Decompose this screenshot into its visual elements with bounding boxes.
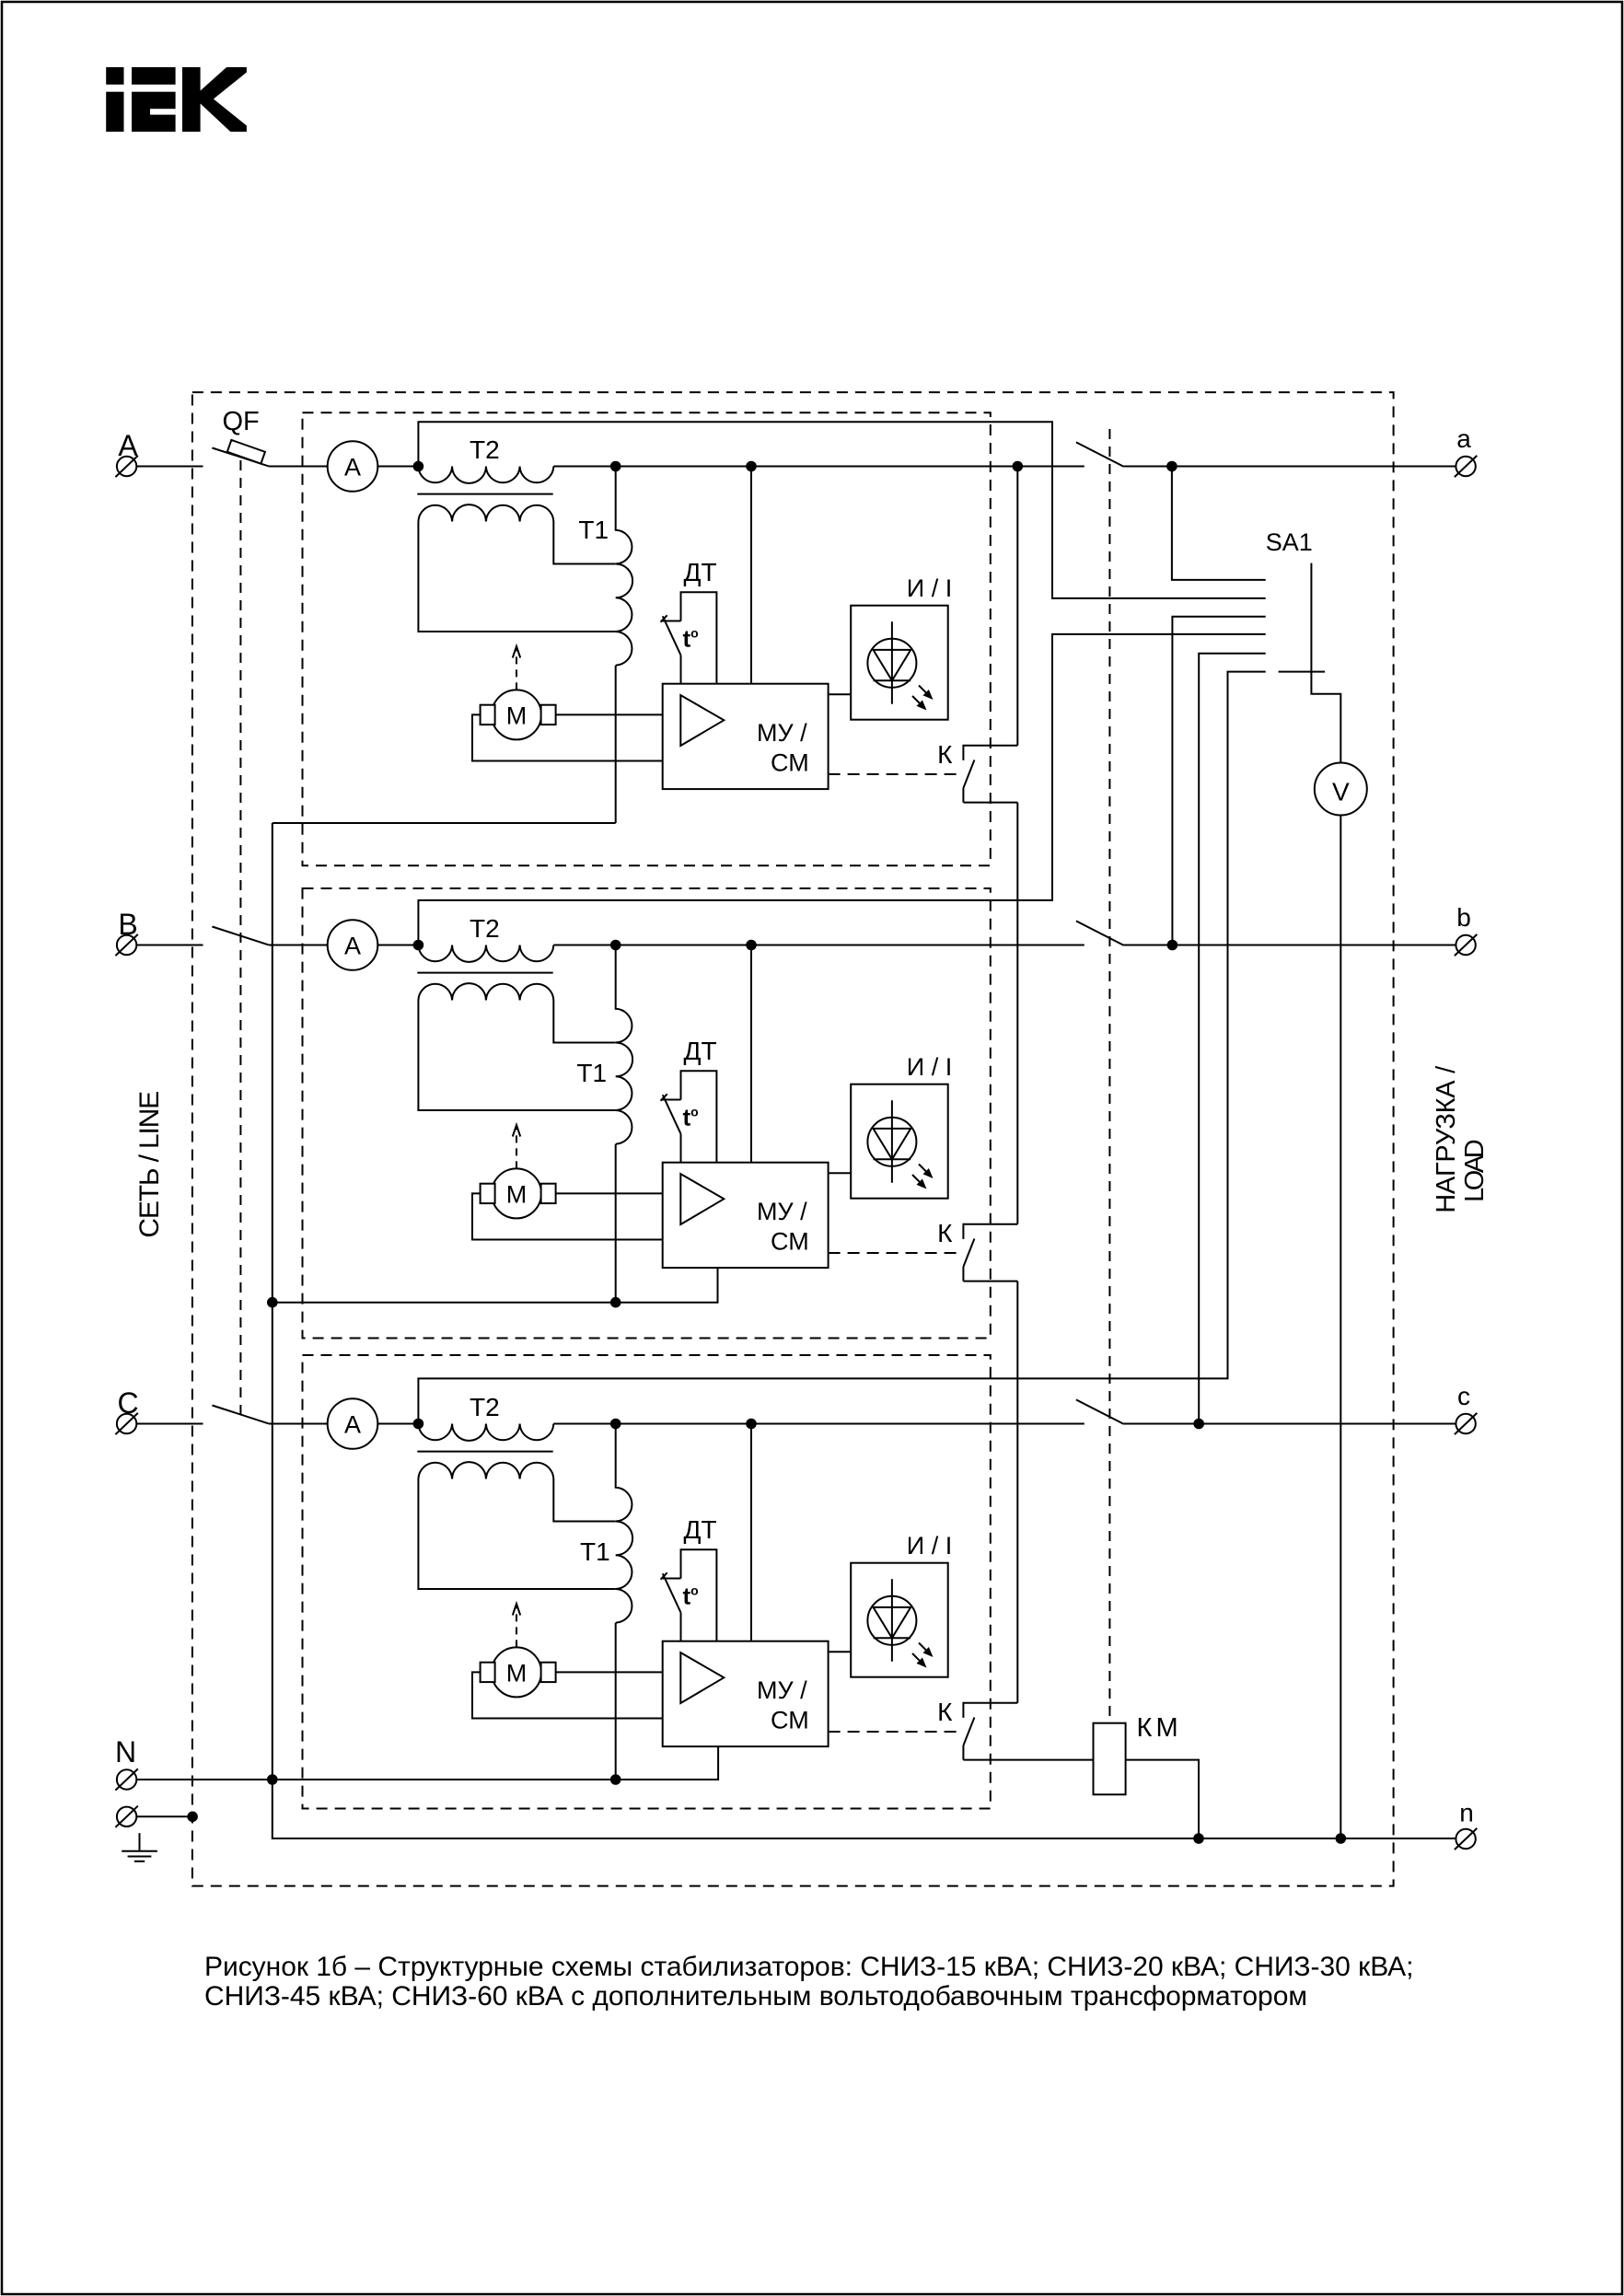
svg-text:ДТ: ДТ — [684, 558, 717, 586]
svg-text:c: c — [1457, 1382, 1470, 1410]
svg-text:to: to — [683, 1103, 699, 1131]
svg-text:К: К — [937, 740, 953, 769]
svg-text:V: V — [1332, 777, 1350, 806]
svg-text:ДТ: ДТ — [684, 1037, 717, 1065]
svg-text:К: К — [937, 1698, 953, 1726]
svg-text:C: C — [117, 1386, 138, 1420]
svg-text:T1: T1 — [580, 1537, 610, 1566]
svg-text:A: A — [344, 932, 361, 959]
svg-text:T2: T2 — [470, 435, 500, 464]
svg-text:СМ: СМ — [771, 1228, 809, 1256]
svg-text:И / I: И / I — [907, 1532, 952, 1560]
svg-text:И / I: И / I — [907, 574, 952, 602]
svg-text:ДТ: ДТ — [684, 1515, 717, 1544]
svg-text:И / I: И / I — [907, 1053, 952, 1081]
svg-text:T2: T2 — [470, 914, 500, 943]
svg-text:N: N — [115, 1735, 136, 1768]
svg-text:МУ /: МУ / — [757, 1198, 807, 1225]
svg-text:a: a — [1456, 424, 1471, 453]
svg-text:СМ: СМ — [771, 1707, 809, 1734]
svg-text:КМ: КМ — [1137, 1713, 1178, 1743]
svg-text:to: to — [683, 1582, 699, 1609]
svg-text:A: A — [344, 453, 361, 481]
svg-text:T2: T2 — [470, 1393, 500, 1421]
svg-text:М: М — [506, 1659, 528, 1687]
svg-text:М: М — [506, 1180, 528, 1208]
svg-text:LOAD: LOAD — [1460, 1139, 1490, 1202]
svg-text:b: b — [1456, 903, 1471, 932]
svg-text:QF: QF — [223, 407, 260, 436]
svg-text:T1: T1 — [578, 516, 609, 544]
svg-text:A: A — [344, 1410, 361, 1438]
svg-text:n: n — [1459, 1799, 1474, 1827]
svg-text:SA1: SA1 — [1266, 528, 1313, 556]
svg-text:A: A — [118, 429, 138, 462]
svg-text:T1: T1 — [576, 1059, 607, 1087]
svg-text:СНИЗ-45 кВА; СНИЗ-60 кВА с доп: СНИЗ-45 кВА; СНИЗ-60 кВА с дополнительны… — [204, 1981, 1307, 2012]
svg-text:to: to — [683, 624, 699, 652]
svg-text:B: B — [118, 908, 137, 941]
svg-text:СМ: СМ — [771, 749, 809, 777]
svg-text:МУ /: МУ / — [757, 719, 807, 747]
svg-text:СЕТЬ / LINE: СЕТЬ / LINE — [134, 1091, 165, 1238]
svg-text:К: К — [937, 1219, 953, 1247]
svg-text:НАГРУЗКА /: НАГРУЗКА / — [1432, 1065, 1461, 1213]
svg-text:МУ /: МУ / — [757, 1676, 807, 1704]
svg-text:Рисунок 1б – Структурные схем: Рисунок 1б – Структурные схемы стабилиза… — [204, 1952, 1414, 1982]
svg-text:М: М — [506, 702, 528, 729]
